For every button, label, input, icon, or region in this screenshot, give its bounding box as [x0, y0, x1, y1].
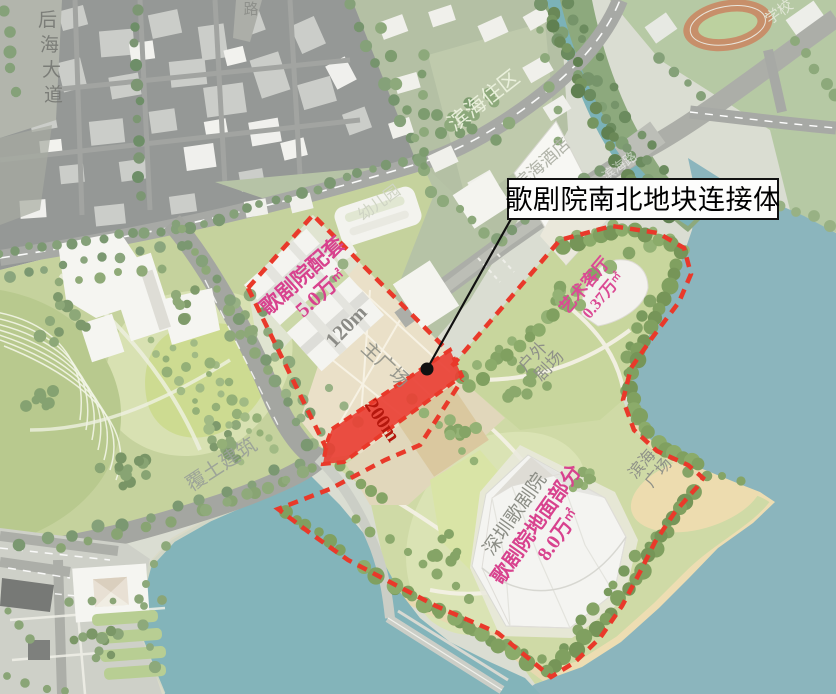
- svg-text:路: 路: [243, 1, 258, 18]
- svg-text:歌剧院南北地块连接体: 歌剧院南北地块连接体: [506, 185, 781, 215]
